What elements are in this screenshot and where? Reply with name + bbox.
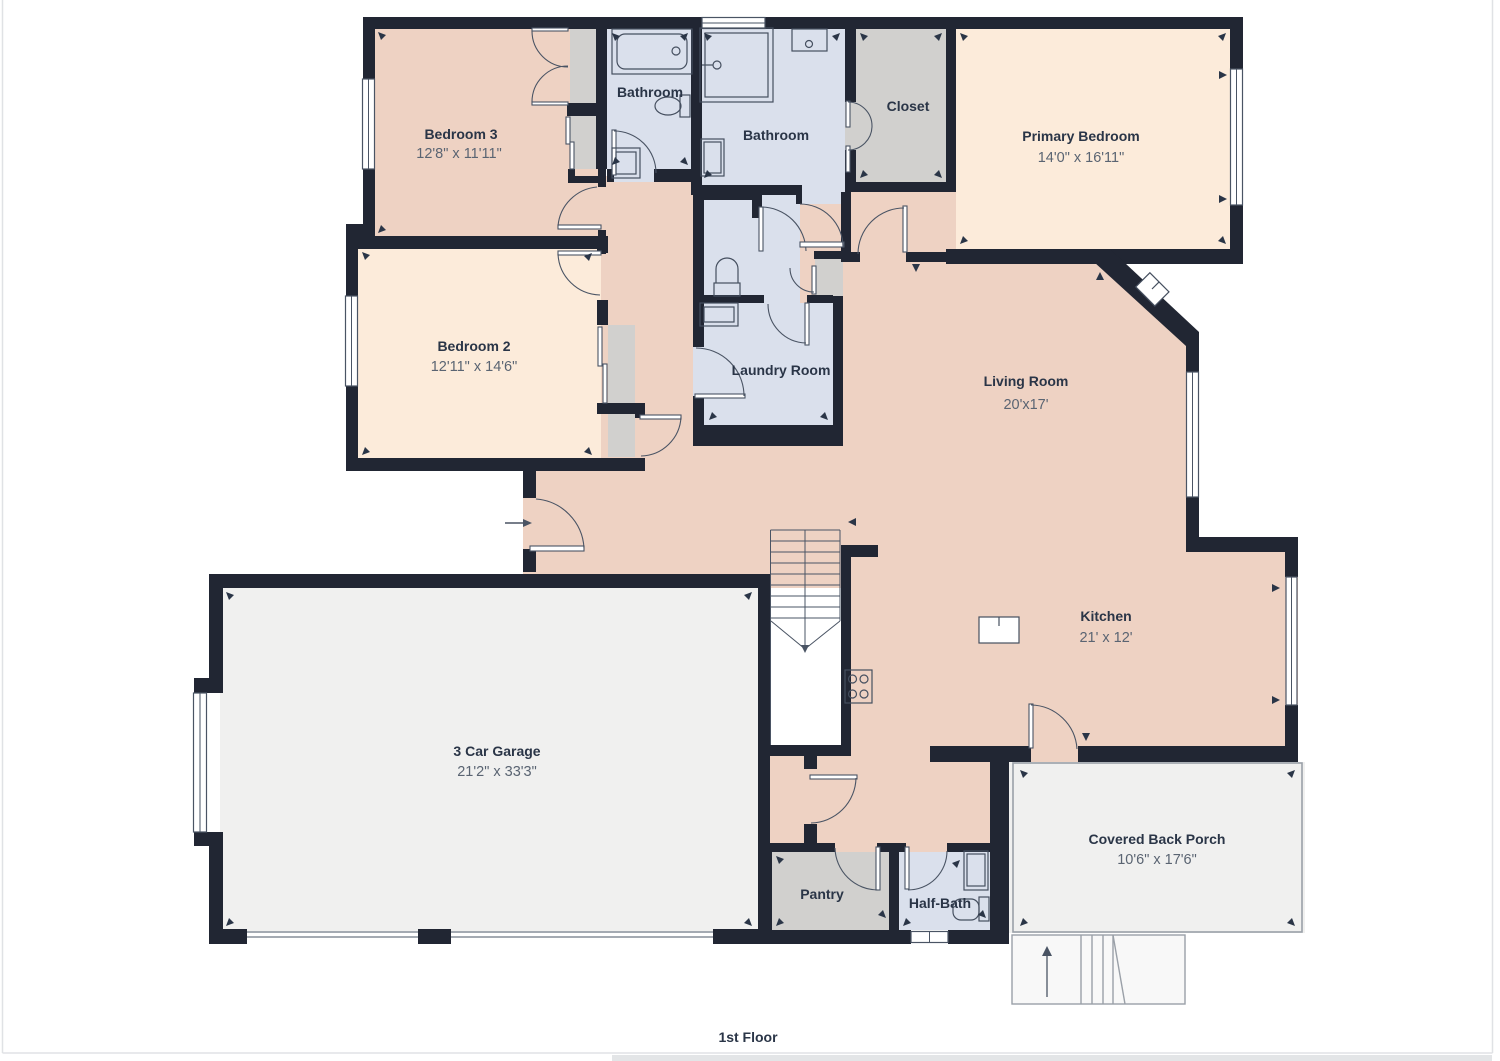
svg-text:Half-Bath: Half-Bath xyxy=(909,895,971,911)
svg-text:14'0" x 16'11": 14'0" x 16'11" xyxy=(1038,150,1125,166)
svg-text:20'x17': 20'x17' xyxy=(1003,397,1048,413)
svg-text:Living Room: Living Room xyxy=(984,373,1069,389)
svg-text:Covered Back Porch: Covered Back Porch xyxy=(1089,831,1226,847)
svg-text:Bathroom: Bathroom xyxy=(617,84,683,100)
svg-text:21' x 12': 21' x 12' xyxy=(1079,630,1132,646)
svg-text:21'2" x 33'3": 21'2" x 33'3" xyxy=(457,764,537,780)
svg-text:Bedroom 3: Bedroom 3 xyxy=(424,126,497,142)
svg-text:12'8" x 11'11": 12'8" x 11'11" xyxy=(416,146,501,162)
svg-text:10'6" x 17'6": 10'6" x 17'6" xyxy=(1117,852,1197,868)
svg-text:1st Floor: 1st Floor xyxy=(718,1029,778,1045)
svg-text:Primary Bedroom: Primary Bedroom xyxy=(1022,128,1139,144)
svg-text:Bedroom 2: Bedroom 2 xyxy=(437,338,510,354)
svg-text:Closet: Closet xyxy=(887,98,930,114)
svg-text:Pantry: Pantry xyxy=(800,886,844,902)
svg-text:Bathroom: Bathroom xyxy=(743,127,809,143)
svg-text:12'11" x 14'6": 12'11" x 14'6" xyxy=(431,359,518,375)
svg-text:3 Car Garage: 3 Car Garage xyxy=(453,743,540,759)
svg-text:Laundry Room: Laundry Room xyxy=(732,362,831,378)
svg-text:Kitchen: Kitchen xyxy=(1080,608,1131,624)
